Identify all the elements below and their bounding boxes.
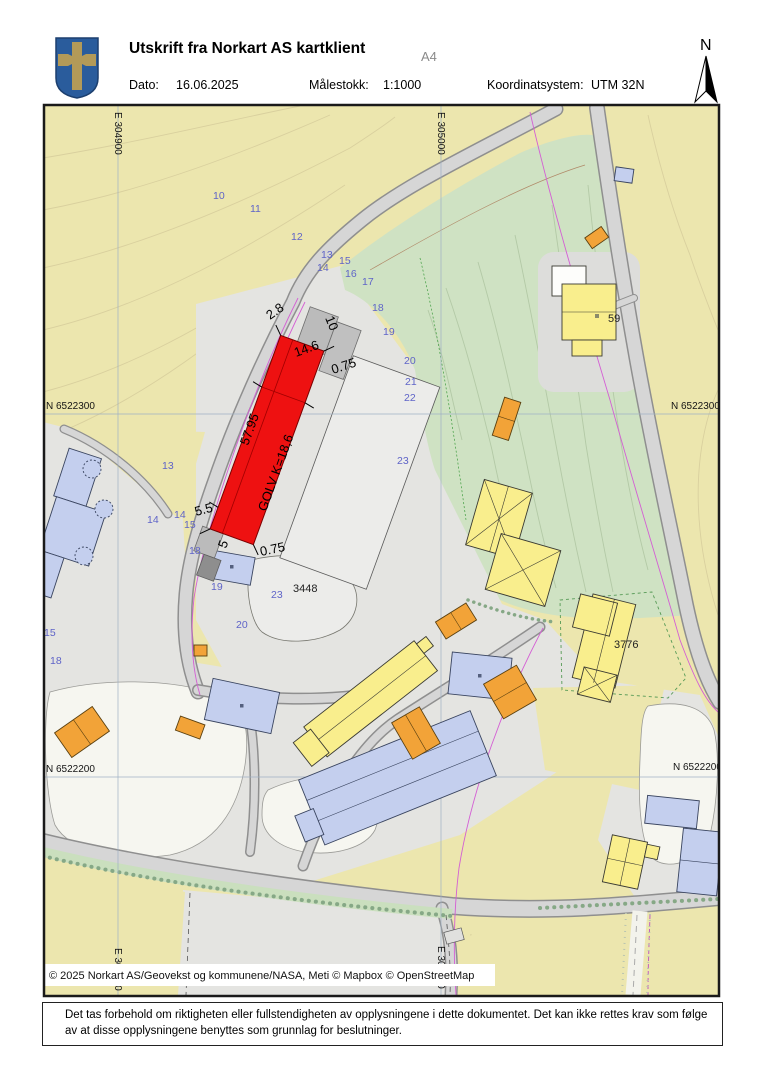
grid-coordinate-label: N 6522300 xyxy=(671,401,720,412)
contour-elevation-label: 20 xyxy=(404,355,416,367)
contour-elevation-label: 10 xyxy=(213,190,225,202)
date-label: Dato: xyxy=(129,78,159,92)
contour-elevation-label: 11 xyxy=(250,203,261,215)
contour-elevation-label: 13 xyxy=(162,460,174,472)
contour-elevation-label: 15 xyxy=(184,519,196,531)
date-value: 16.06.2025 xyxy=(176,78,239,92)
contour-elevation-label: 17 xyxy=(362,276,374,288)
north-letter: N xyxy=(700,37,712,54)
contour-elevation-label: 18 xyxy=(50,655,62,667)
building-number-label: 3448 xyxy=(293,583,317,595)
municipality-crest xyxy=(54,36,100,100)
scale-value: 1:1000 xyxy=(383,78,421,92)
coordsys-label: Koordinatsystem: xyxy=(487,78,584,92)
contour-elevation-label: 13 xyxy=(321,249,333,261)
copyright-text: © 2025 Norkart AS/Geovekst og kommunene/… xyxy=(49,970,474,982)
grid-coordinate-label: E 305000 xyxy=(435,112,446,155)
contour-elevation-label: 19 xyxy=(383,326,395,338)
north-arrow-icon: N xyxy=(686,30,726,108)
disclaimer-text: Det tas forbehold om riktigheten eller f… xyxy=(65,1009,707,1037)
paper-size-label: A4 xyxy=(421,49,437,64)
contour-elevation-label: 16 xyxy=(345,268,357,280)
building-number-label: 3776 xyxy=(614,639,638,651)
scale-label: Målestokk: xyxy=(309,78,369,92)
grid-coordinate-label: N 6522200 xyxy=(673,762,721,773)
grid-coordinate-label: N 6522300 xyxy=(46,401,95,412)
contour-elevation-label: 18 xyxy=(189,545,201,557)
contour-elevation-label: 14 xyxy=(147,514,159,526)
building-number-label: 59 xyxy=(608,313,620,325)
contour-elevation-label: 15 xyxy=(339,255,351,267)
contour-elevation-label: 18 xyxy=(372,302,384,314)
disclaimer-box: Det tas forbehold om riktigheten eller f… xyxy=(42,1002,723,1046)
contour-elevation-label: 23 xyxy=(397,455,409,467)
grid-coordinate-label: N 6522200 xyxy=(46,764,95,775)
contour-elevation-label: 14 xyxy=(317,262,329,274)
page-title: Utskrift fra Norkart AS kartklient xyxy=(129,40,365,58)
contour-elevation-label: 15 xyxy=(44,627,56,639)
contour-elevation-label: 21 xyxy=(405,376,417,388)
contour-elevation-label: 22 xyxy=(404,392,416,404)
contour-elevation-label: 19 xyxy=(211,581,223,593)
contour-elevation-label: 20 xyxy=(236,619,248,631)
coordsys-value: UTM 32N xyxy=(591,78,644,92)
contour-elevation-label: 23 xyxy=(271,589,283,601)
grid-coordinate-label: E 304900 xyxy=(112,112,123,155)
print-page: { "header": { "title": "Utskrift fra Nor… xyxy=(0,0,763,1080)
map-canvas: 1011121314151617181920212223131414151518… xyxy=(42,103,721,998)
contour-elevation-label: 12 xyxy=(291,231,303,243)
